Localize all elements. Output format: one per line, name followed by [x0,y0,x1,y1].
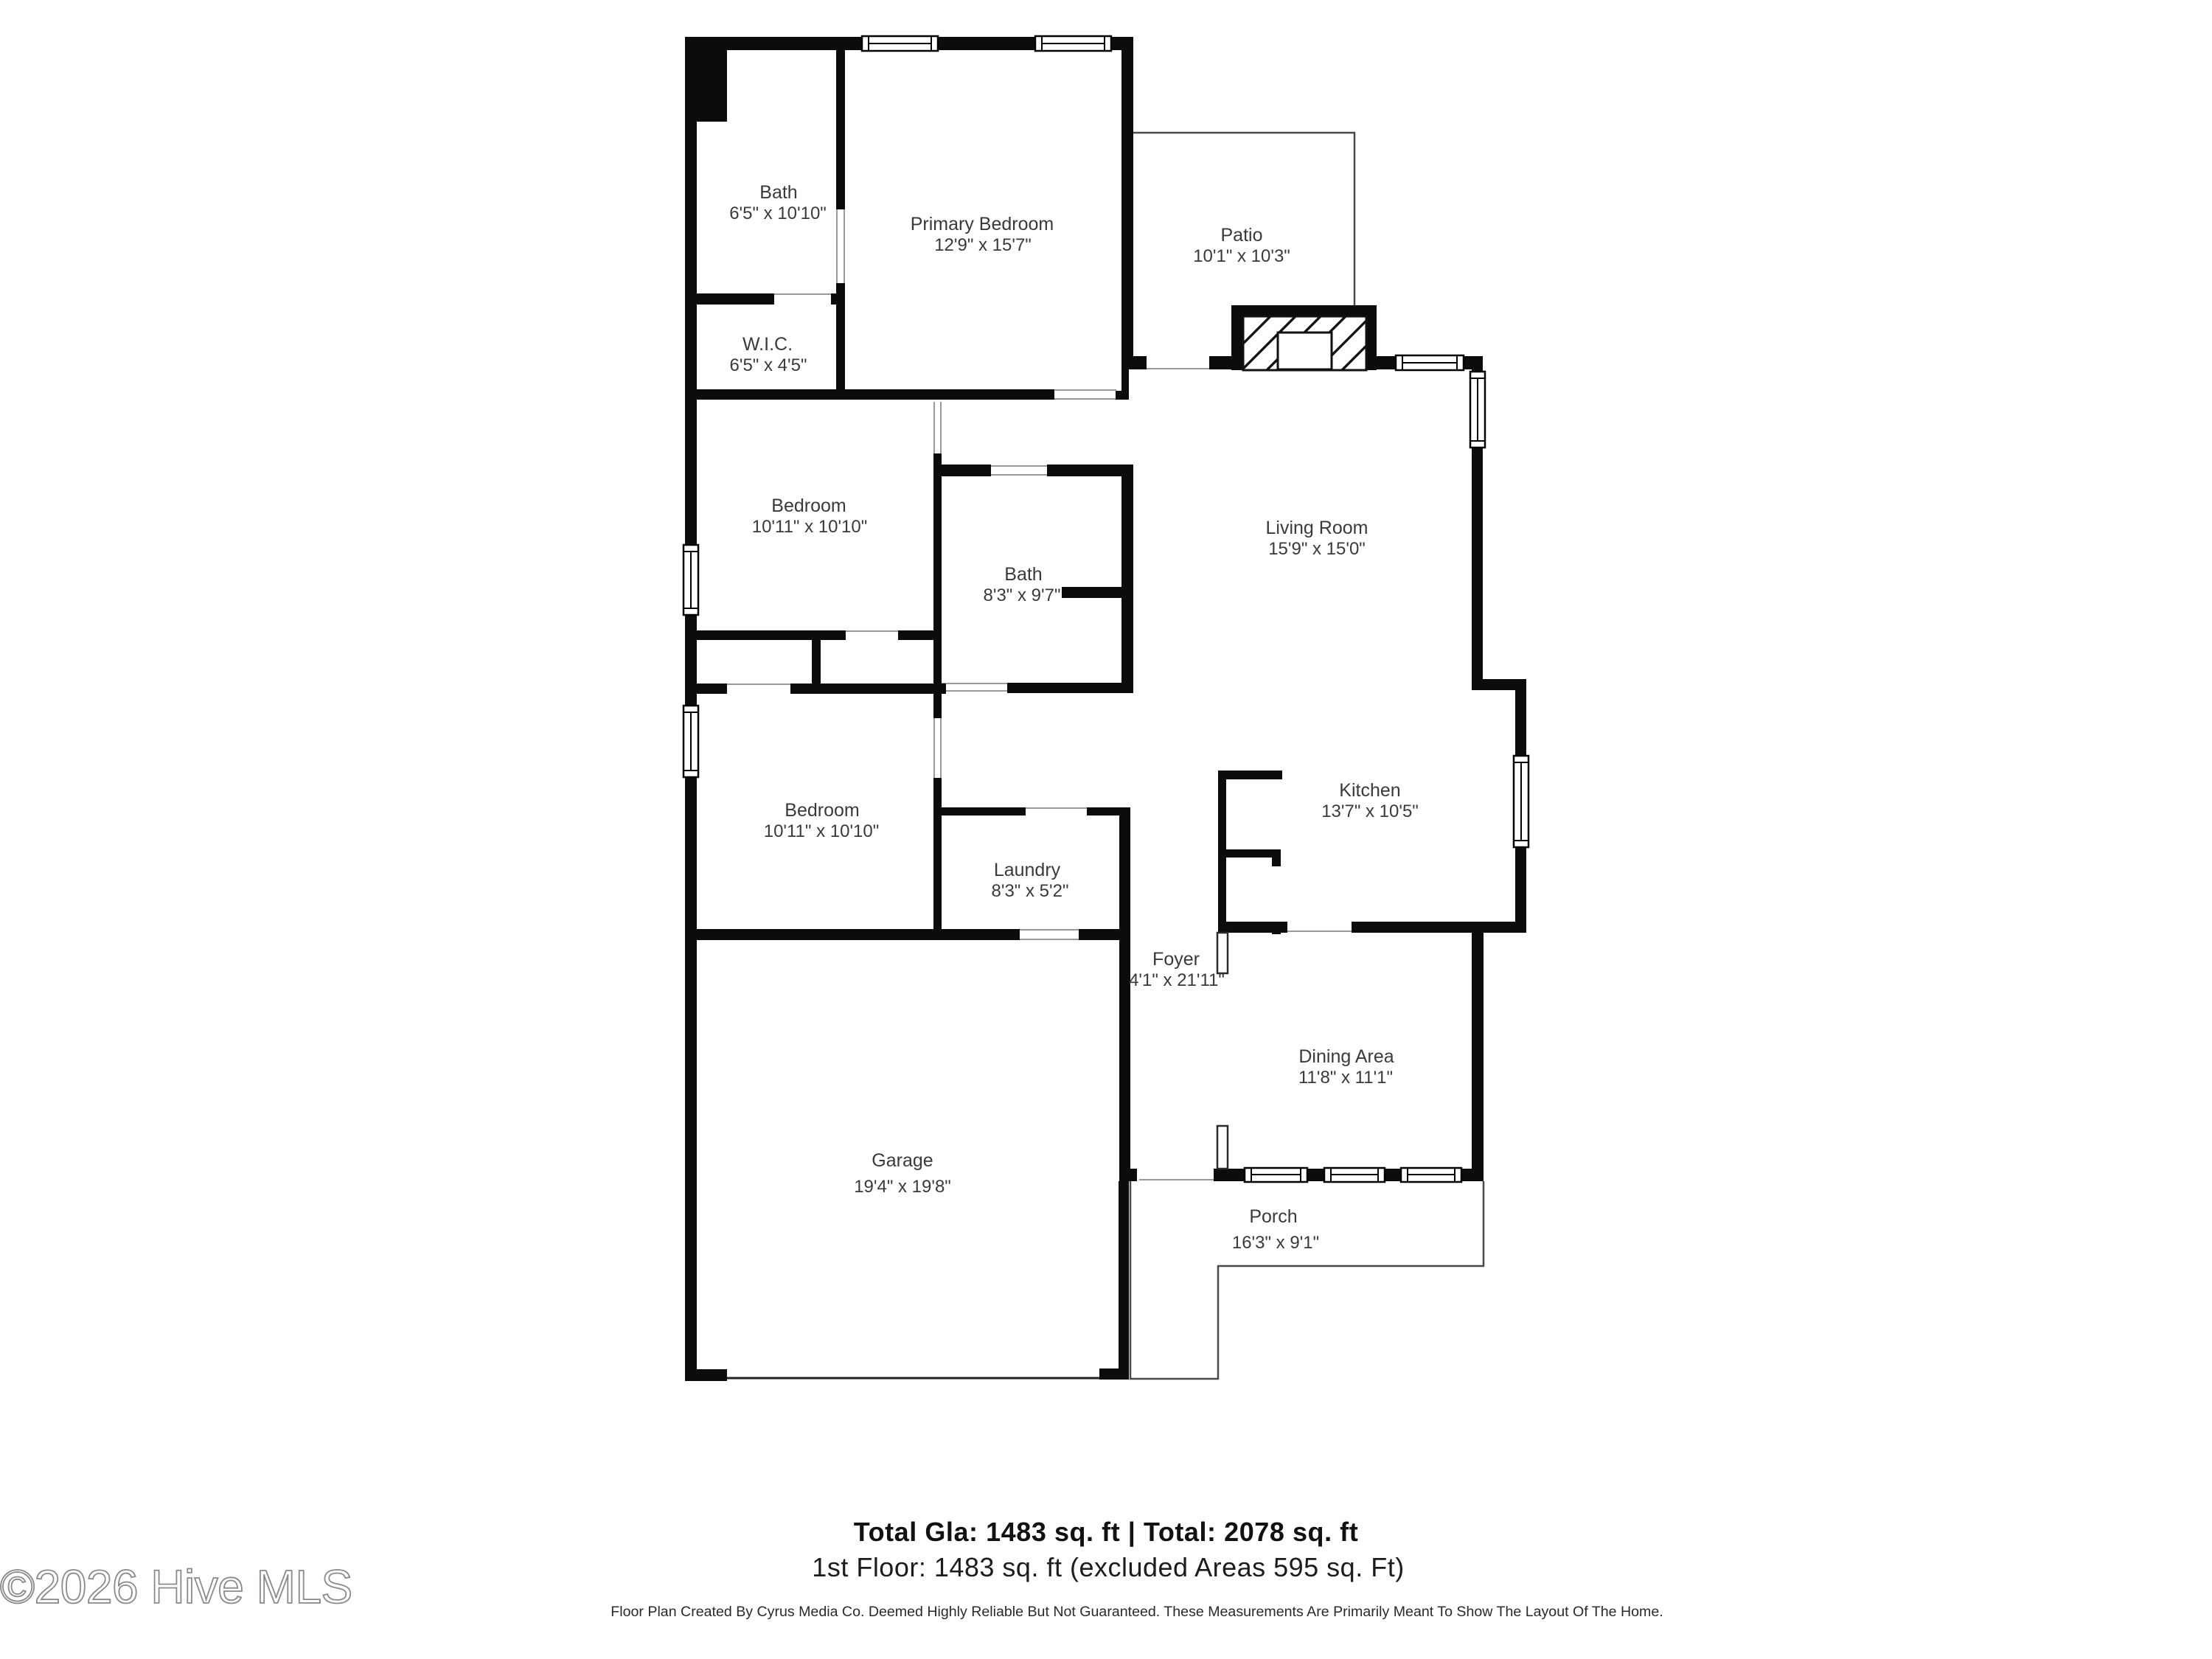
svg-text:Laundry: Laundry [994,860,1061,880]
svg-text:Patio: Patio [1221,225,1263,246]
svg-text:Porch: Porch [1249,1206,1297,1227]
svg-text:Garage: Garage [872,1150,933,1171]
svg-text:10'11" x 10'10": 10'11" x 10'10" [764,821,880,841]
svg-text:8'3" x 9'7": 8'3" x 9'7" [984,585,1061,605]
svg-text:Bath: Bath [1004,564,1042,585]
svg-text:10'11" x 10'10": 10'11" x 10'10" [752,517,868,537]
svg-text:Bedroom: Bedroom [785,800,859,821]
svg-text:4'1" x 21'11": 4'1" x 21'11" [1129,970,1225,990]
svg-text:10'1" x 10'3": 10'1" x 10'3" [1193,246,1290,266]
svg-text:Primary Bedroom: Primary Bedroom [911,214,1054,234]
svg-text:Dining Area: Dining Area [1298,1046,1394,1067]
svg-text:16'3" x 9'1": 16'3" x 9'1" [1232,1233,1319,1253]
svg-text:6'5" x 10'10": 6'5" x 10'10" [729,204,827,223]
svg-text:15'9" x 15'0": 15'9" x 15'0" [1268,539,1366,559]
svg-text:6'5" x 4'5": 6'5" x 4'5" [730,355,807,375]
svg-text:Bedroom: Bedroom [771,495,846,516]
svg-text:13'7" x 10'5": 13'7" x 10'5" [1321,801,1419,821]
svg-text:12'9" x 15'7": 12'9" x 15'7" [934,235,1032,255]
svg-text:Foyer: Foyer [1152,949,1200,970]
svg-text:Floor Plan Created By Cyrus Me: Floor Plan Created By Cyrus Media Co. De… [611,1604,1663,1620]
svg-text:Total Gla: 1483 sq. ft | Total: Total Gla: 1483 sq. ft | Total: 2078 sq.… [854,1517,1359,1548]
svg-text:W.I.C.: W.I.C. [742,334,793,355]
svg-text:Kitchen: Kitchen [1339,780,1400,801]
svg-text:Bath: Bath [759,182,797,203]
svg-text:©2026 Hive MLS: ©2026 Hive MLS [0,1560,352,1613]
svg-text:19'4" x 19'8": 19'4" x 19'8" [854,1177,951,1197]
svg-text:11'8" x 11'1": 11'8" x 11'1" [1298,1068,1393,1088]
svg-text:Living Room: Living Room [1266,518,1368,538]
svg-text:1st Floor: 1483 sq. ft (exclud: 1st Floor: 1483 sq. ft (excluded Areas 5… [812,1552,1404,1582]
svg-text:8'3" x 5'2": 8'3" x 5'2" [992,881,1069,901]
